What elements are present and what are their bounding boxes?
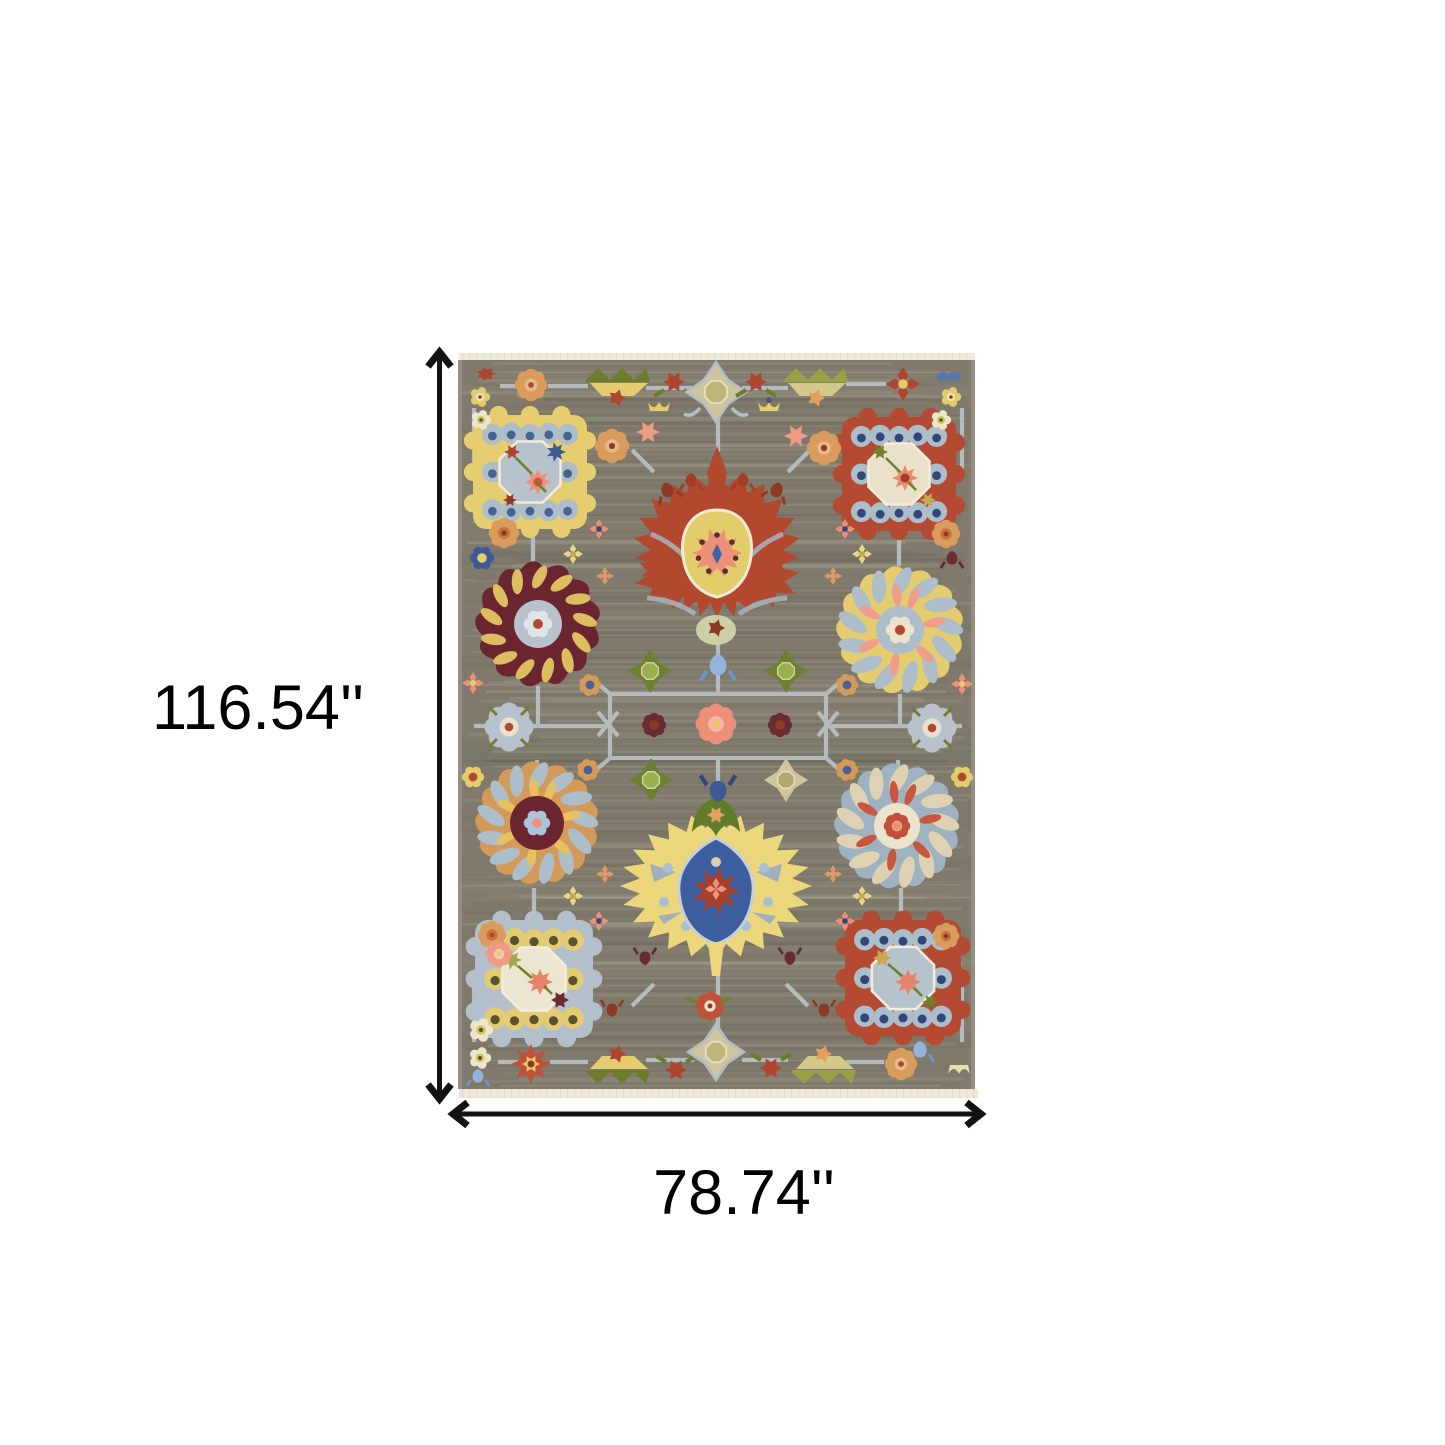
svg-text:116.54'': 116.54'' — [152, 673, 364, 743]
svg-text:78.74'': 78.74'' — [653, 1158, 835, 1228]
